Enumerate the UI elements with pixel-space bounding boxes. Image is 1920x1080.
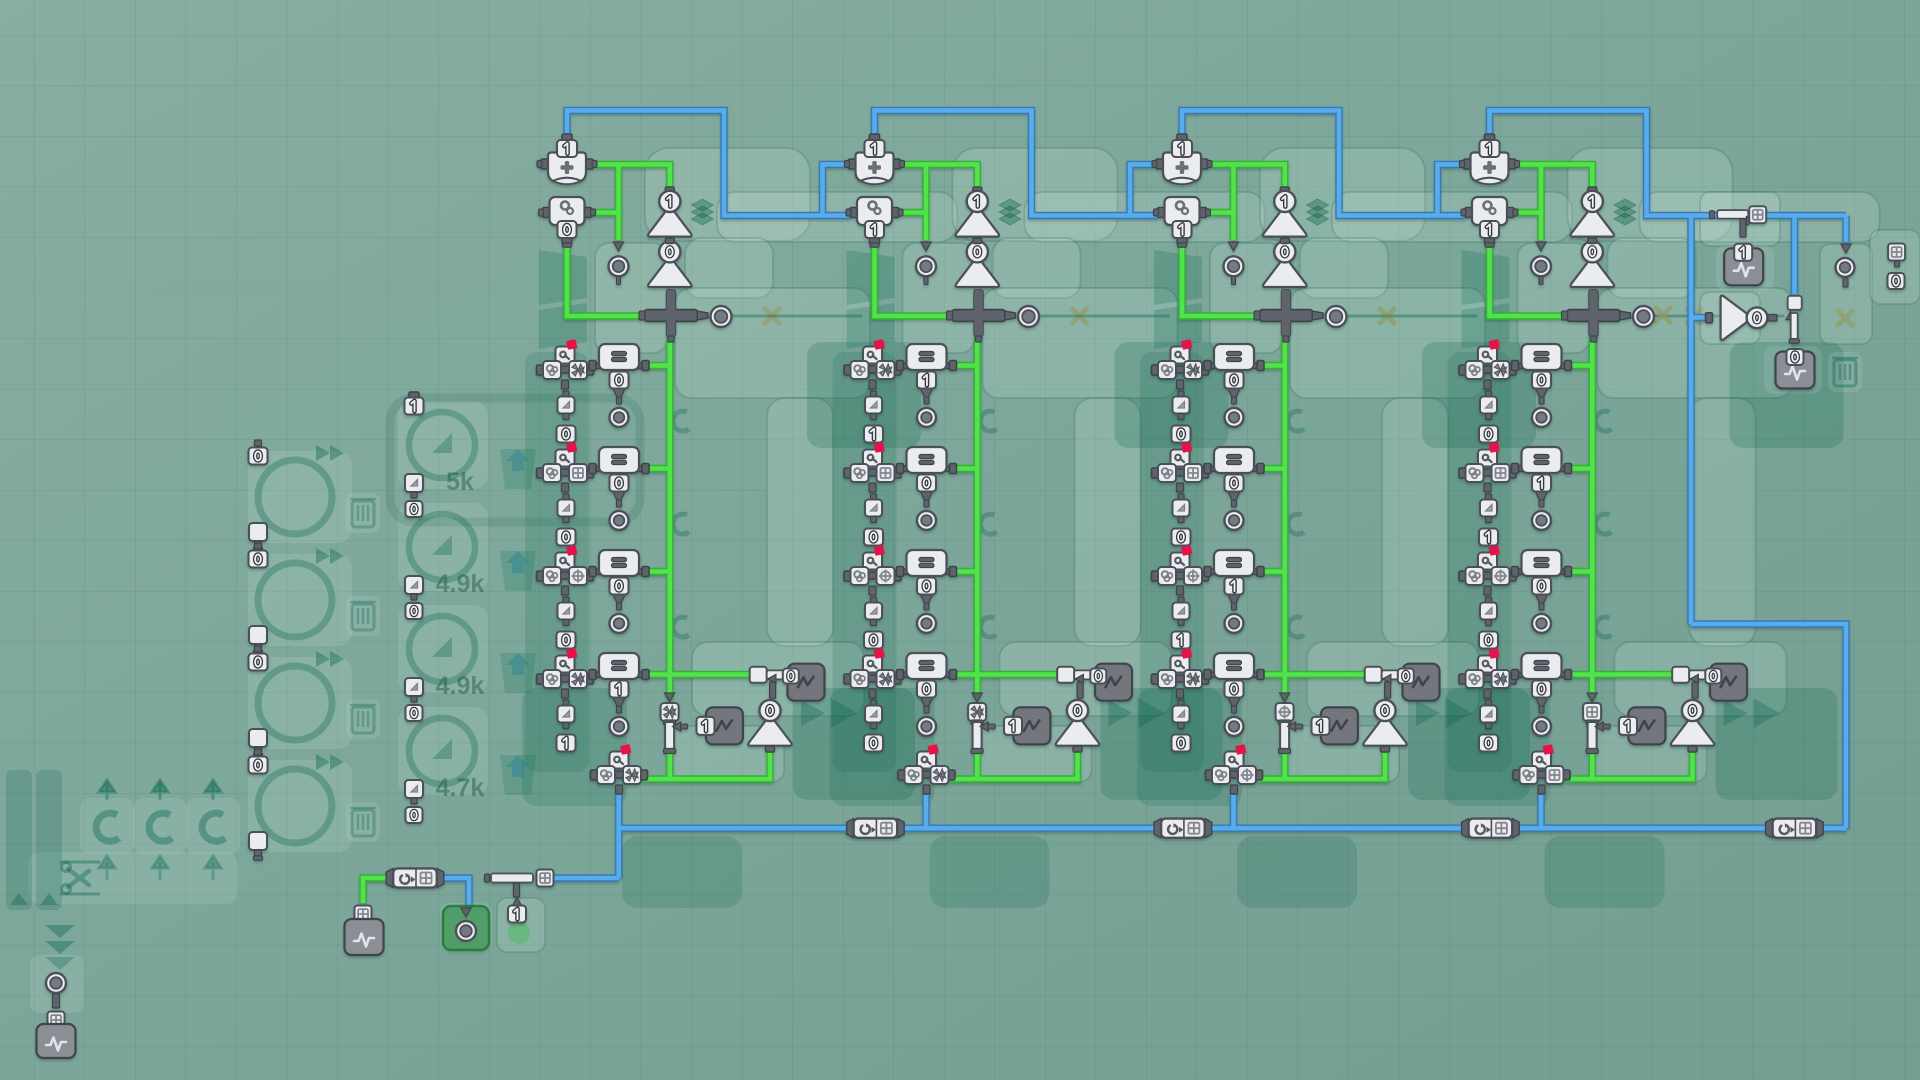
svg-text:4.9k: 4.9k (436, 672, 485, 700)
svg-text:4.9k: 4.9k (436, 570, 485, 598)
svg-text:4.7k: 4.7k (436, 774, 485, 802)
svg-text:5k: 5k (446, 468, 474, 496)
